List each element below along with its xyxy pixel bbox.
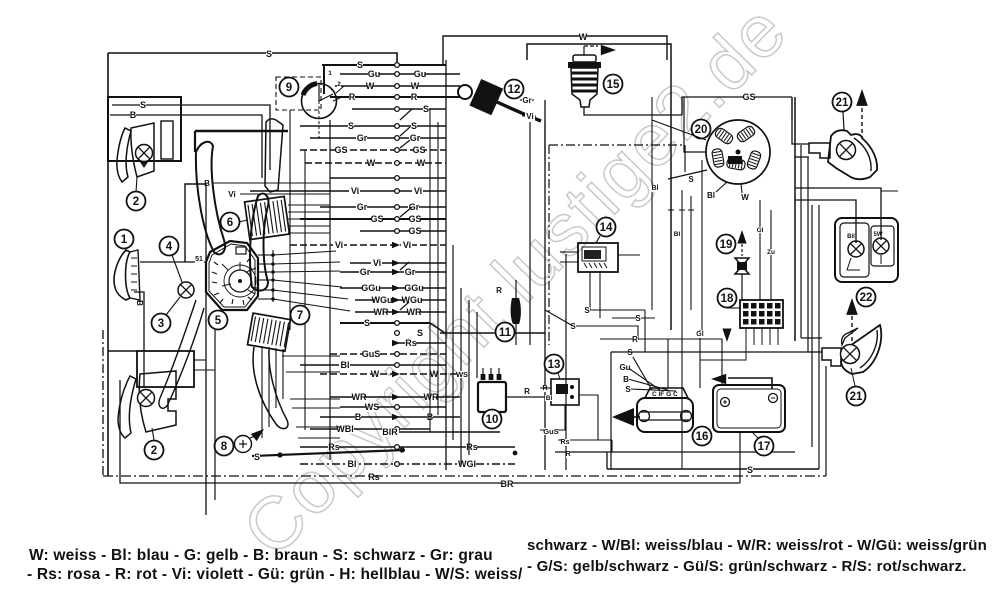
- svg-text:R: R: [524, 387, 530, 396]
- svg-text:15: 15: [607, 79, 620, 91]
- svg-text:GS: GS: [408, 226, 421, 236]
- svg-text:Bl: Bl: [341, 360, 350, 370]
- svg-text:S: S: [266, 49, 272, 59]
- svg-text:S: S: [584, 306, 590, 315]
- svg-text:3: 3: [158, 318, 164, 330]
- svg-text:Vi: Vi: [228, 190, 235, 199]
- svg-text:Zu: Zu: [767, 249, 775, 256]
- svg-text:Bl: Bl: [674, 231, 681, 238]
- svg-text:GS: GS: [408, 214, 421, 224]
- svg-text:S: S: [747, 465, 753, 475]
- svg-text:S: S: [348, 121, 354, 131]
- svg-text:Gr: Gr: [410, 133, 421, 143]
- svg-text:22: 22: [860, 292, 873, 304]
- svg-text:12: 12: [508, 84, 521, 96]
- svg-text:S: S: [254, 452, 260, 462]
- svg-text:8: 8: [221, 441, 228, 453]
- svg-text:BR: BR: [501, 479, 514, 489]
- svg-text:W: W: [366, 81, 375, 91]
- svg-text:R: R: [349, 92, 356, 102]
- svg-text:Bl: Bl: [652, 185, 659, 192]
- svg-text:Gr: Gr: [405, 267, 416, 277]
- svg-text:R: R: [632, 335, 638, 344]
- svg-text:schwarz - W/Bl: weiss/blau - W: schwarz - W/Bl: weiss/blau - W/R: weiss/…: [527, 537, 987, 554]
- svg-text:14: 14: [600, 222, 613, 234]
- svg-text:7: 7: [297, 310, 303, 322]
- svg-text:19: 19: [720, 239, 733, 251]
- svg-text:WR: WR: [424, 392, 439, 402]
- svg-text:GuS: GuS: [543, 427, 558, 436]
- svg-text:Bl: Bl: [546, 395, 553, 402]
- svg-text:GS: GS: [742, 92, 755, 102]
- svg-text:W: W: [367, 158, 376, 168]
- svg-text:GuS: GuS: [362, 349, 381, 359]
- svg-text:GGu: GGu: [361, 283, 381, 293]
- svg-text:51: 51: [195, 256, 203, 263]
- svg-text:W: W: [417, 158, 426, 168]
- svg-text:B: B: [135, 300, 144, 306]
- svg-text:S: S: [411, 121, 417, 131]
- svg-text:WR: WR: [352, 392, 367, 402]
- svg-text:WBl: WBl: [336, 424, 354, 434]
- svg-text:Vi: Vi: [351, 186, 359, 196]
- svg-text:6: 6: [227, 217, 233, 229]
- svg-text:- G/S: gelb/schwarz - Gü/S: gr: - G/S: gelb/schwarz - Gü/S: grün/schwarz…: [527, 558, 967, 575]
- svg-text:WGu: WGu: [372, 295, 393, 305]
- svg-text:Gr: Gr: [409, 202, 420, 212]
- svg-text:Vi: Vi: [373, 258, 381, 268]
- svg-text:11: 11: [499, 327, 512, 339]
- svg-text:- Rs: rosa - R: rot - Vi: viol: - Rs: rosa - R: rot - Vi: violett - Gü: …: [27, 566, 523, 583]
- svg-text:S: S: [357, 60, 363, 70]
- svg-text:2: 2: [337, 81, 341, 88]
- svg-text:Gl: Gl: [757, 227, 764, 234]
- svg-text:R: R: [496, 286, 502, 295]
- svg-text:S: S: [625, 385, 631, 394]
- svg-text:Gr: Gr: [360, 267, 371, 277]
- svg-text:Gu: Gu: [414, 69, 427, 79]
- svg-text:C IF G C: C IF G C: [652, 391, 678, 398]
- svg-text:GS: GS: [412, 145, 425, 155]
- svg-text:2: 2: [133, 196, 139, 208]
- svg-text:Gr: Gr: [357, 133, 368, 143]
- svg-text:R: R: [411, 92, 418, 102]
- svg-text:Bl: Bl: [707, 191, 715, 200]
- svg-text:20: 20: [695, 124, 708, 136]
- svg-text:4: 4: [166, 241, 173, 253]
- svg-text:W: W: [411, 81, 420, 91]
- svg-text:9: 9: [286, 82, 292, 94]
- svg-text:WGu: WGu: [402, 295, 423, 305]
- svg-text:B: B: [623, 375, 629, 384]
- svg-text:Vi: Vi: [526, 112, 533, 121]
- svg-text:Gr: Gr: [357, 202, 368, 212]
- svg-text:WS: WS: [365, 402, 380, 412]
- svg-text:17: 17: [758, 441, 771, 453]
- svg-text:GS: GS: [334, 145, 347, 155]
- svg-text:21: 21: [850, 391, 863, 403]
- svg-text:1: 1: [328, 70, 332, 77]
- svg-text:21: 21: [836, 97, 849, 109]
- svg-text:Gl: Gl: [696, 331, 703, 338]
- svg-text:Rs: Rs: [466, 442, 478, 452]
- svg-text:W: W: [430, 369, 439, 379]
- svg-text:Vi: Vi: [414, 186, 422, 196]
- svg-text:B: B: [355, 412, 362, 422]
- svg-text:GS: GS: [370, 214, 383, 224]
- svg-text:WS: WS: [456, 370, 468, 379]
- svg-text:Gu: Gu: [619, 363, 630, 372]
- svg-text:WR: WR: [407, 307, 422, 317]
- svg-text:S: S: [417, 328, 423, 338]
- svg-text:R: R: [565, 451, 570, 458]
- svg-text:S: S: [635, 314, 641, 323]
- svg-text:5: 5: [215, 315, 222, 327]
- svg-text:Rs: Rs: [368, 472, 380, 482]
- svg-text:WR: WR: [374, 307, 389, 317]
- svg-text:Vi: Vi: [403, 240, 411, 250]
- svg-text:2: 2: [151, 445, 157, 457]
- svg-text:BlR: BlR: [382, 427, 398, 437]
- svg-text:Rs: Rs: [561, 439, 570, 446]
- svg-text:W: W: [579, 32, 588, 42]
- svg-text:S: S: [570, 322, 576, 331]
- svg-text:Vi: Vi: [335, 240, 343, 250]
- svg-text:16: 16: [696, 431, 709, 443]
- svg-text:Rs: Rs: [405, 338, 417, 348]
- svg-text:Bil: Bil: [847, 234, 855, 240]
- svg-text:W: W: [371, 369, 380, 379]
- svg-text:18: 18: [721, 293, 734, 305]
- svg-text:S: S: [688, 175, 694, 184]
- svg-text:B: B: [130, 110, 137, 120]
- svg-text:W: weiss - Bl: blau - G: gelb: W: weiss - Bl: blau - G: gelb - B: braun…: [29, 547, 493, 564]
- svg-text:GGu: GGu: [404, 283, 424, 293]
- svg-text:Bl: Bl: [348, 459, 357, 469]
- svg-text:S: S: [423, 104, 429, 114]
- svg-text:10: 10: [486, 414, 499, 426]
- svg-text:B: B: [204, 179, 210, 188]
- svg-text:S: S: [140, 100, 146, 110]
- svg-text:W: W: [741, 193, 749, 202]
- svg-text:Gr: Gr: [522, 96, 531, 105]
- svg-text:Gu: Gu: [368, 69, 381, 79]
- svg-text:S: S: [364, 318, 370, 328]
- svg-text:1: 1: [121, 234, 128, 246]
- svg-text:13: 13: [548, 359, 561, 371]
